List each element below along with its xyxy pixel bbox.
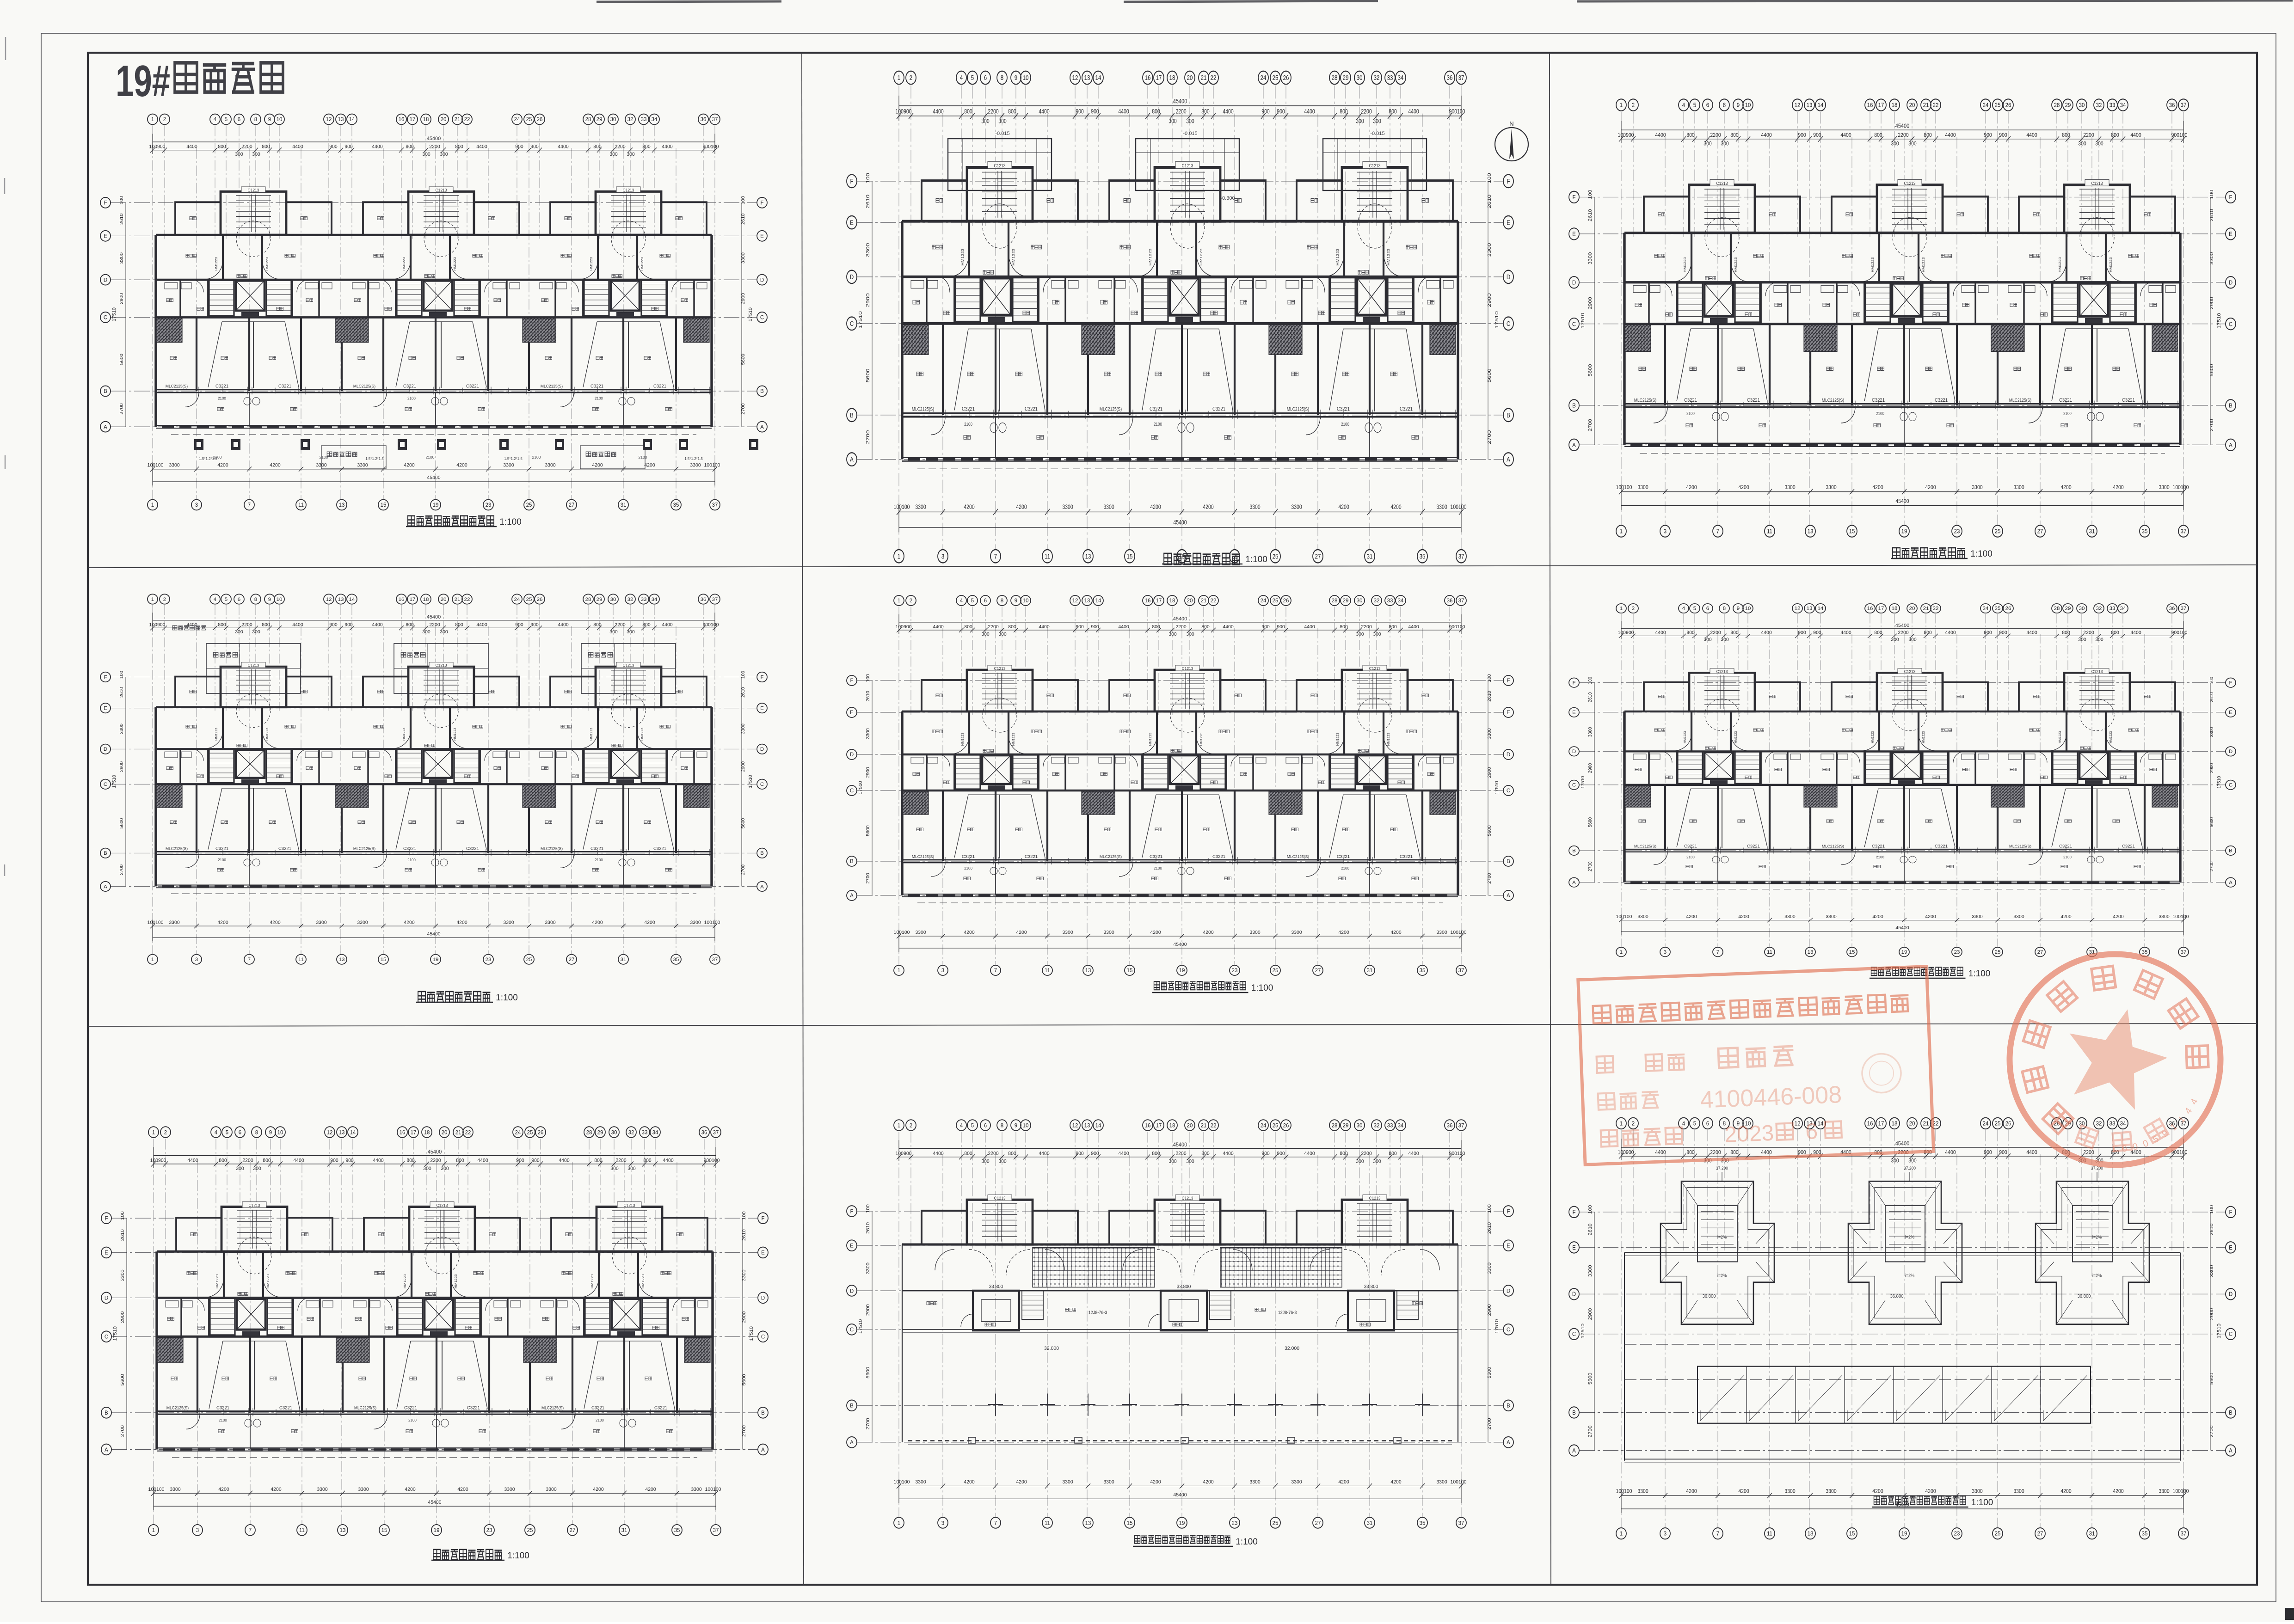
svg-text:1:100: 1:100 [1968, 969, 1991, 979]
svg-text:4100446-008: 4100446-008 [1700, 1081, 1843, 1114]
svg-text:2100: 2100 [639, 455, 647, 460]
svg-text:N: N [1509, 120, 1513, 127]
svg-text:2100: 2100 [320, 455, 328, 460]
svg-text:-0.300: -0.300 [1220, 196, 1235, 201]
svg-text:1:100: 1:100 [1971, 1498, 1993, 1508]
svg-text:1.5*1.2*1.5: 1.5*1.2*1.5 [504, 457, 523, 461]
svg-text:1:100: 1:100 [1236, 1537, 1258, 1547]
svg-text:1:100: 1:100 [499, 517, 522, 527]
svg-text:6: 6 [1805, 1119, 1818, 1144]
svg-text:1:100: 1:100 [496, 993, 518, 1003]
svg-text:1:100: 1:100 [1970, 549, 1993, 559]
svg-text:-0.015: -0.015 [995, 131, 1009, 136]
svg-text:2023: 2023 [1724, 1121, 1775, 1147]
svg-text:2100: 2100 [426, 455, 435, 460]
svg-text:1:100: 1:100 [1245, 555, 1267, 564]
svg-text:1.5*1.2*1.5: 1.5*1.2*1.5 [365, 457, 384, 461]
svg-text:0: 0 [2122, 1143, 2128, 1154]
svg-text:2100: 2100 [532, 455, 541, 460]
svg-text:1:100: 1:100 [507, 1551, 529, 1561]
svg-text:1:100: 1:100 [1251, 983, 1273, 993]
svg-text:2100: 2100 [213, 455, 222, 460]
svg-text:-0.015: -0.015 [1183, 131, 1197, 136]
svg-text:19#: 19# [116, 56, 170, 106]
svg-text:1: 1 [2111, 1144, 2116, 1154]
svg-text:1.5*1.2*1.5: 1.5*1.2*1.5 [684, 457, 703, 461]
svg-text:-0.015: -0.015 [1370, 131, 1384, 136]
